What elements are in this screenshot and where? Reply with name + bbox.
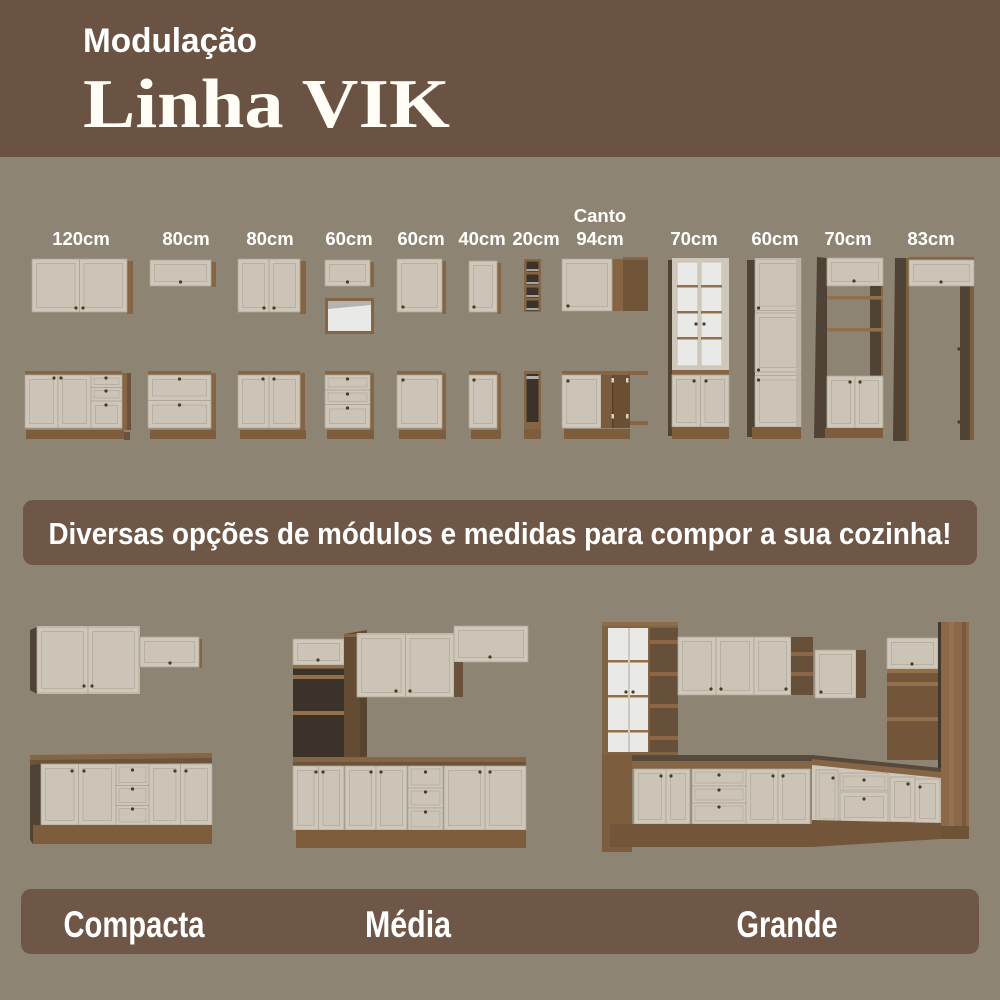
svg-text:94cm: 94cm	[576, 228, 623, 249]
svg-text:Modulação: Modulação	[83, 22, 257, 60]
svg-text:Média: Média	[365, 904, 451, 945]
svg-text:Canto: Canto	[574, 205, 626, 226]
svg-text:80cm: 80cm	[246, 228, 293, 249]
svg-text:60cm: 60cm	[397, 228, 444, 249]
svg-text:70cm: 70cm	[824, 228, 871, 249]
svg-text:Grande: Grande	[737, 904, 838, 945]
svg-text:Linha VIK: Linha VIK	[83, 66, 450, 143]
svg-text:83cm: 83cm	[907, 228, 954, 249]
svg-text:60cm: 60cm	[325, 228, 372, 249]
svg-text:80cm: 80cm	[162, 228, 209, 249]
svg-text:40cm: 40cm	[458, 228, 505, 249]
svg-text:70cm: 70cm	[670, 228, 717, 249]
svg-text:120cm: 120cm	[52, 228, 110, 249]
svg-text:60cm: 60cm	[751, 228, 798, 249]
svg-text:20cm: 20cm	[512, 228, 559, 249]
svg-text:Compacta: Compacta	[64, 904, 205, 945]
svg-text:Diversas opções de módulos e m: Diversas opções de módulos e medidas par…	[49, 516, 952, 551]
